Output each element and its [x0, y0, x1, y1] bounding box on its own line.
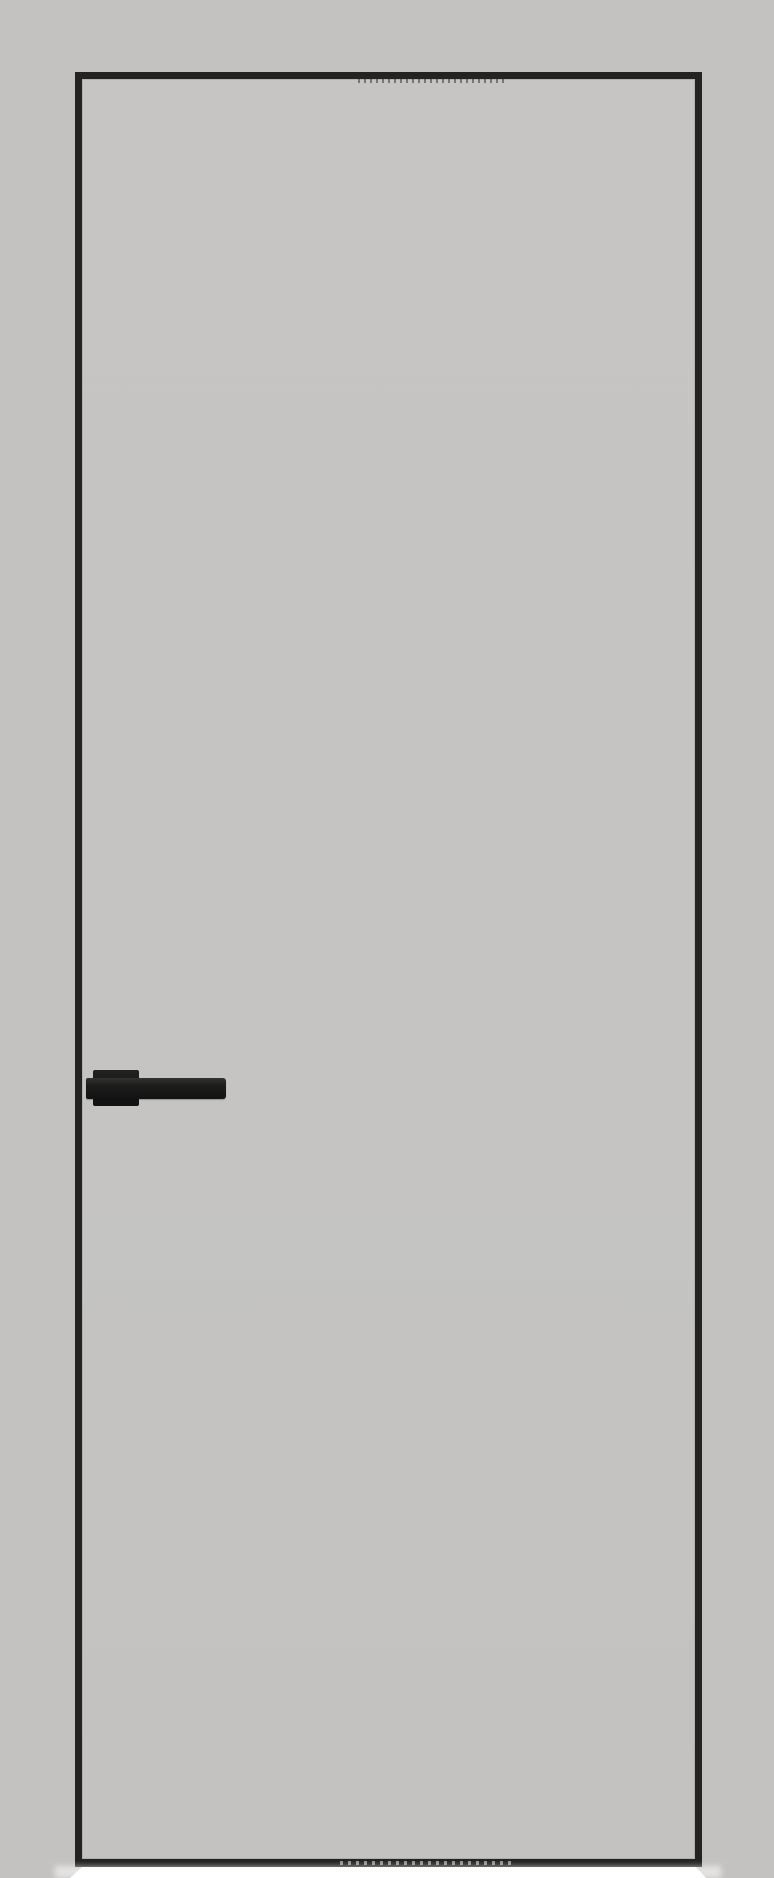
frame-seal-marks-bottom [340, 1861, 512, 1865]
door-leaf [82, 79, 695, 1859]
door-handle-lever [86, 1078, 226, 1099]
product-photo [0, 0, 774, 1878]
door-frame [75, 72, 702, 1867]
floor-highlight [70, 1867, 706, 1878]
frame-seal-marks-top [358, 79, 506, 83]
